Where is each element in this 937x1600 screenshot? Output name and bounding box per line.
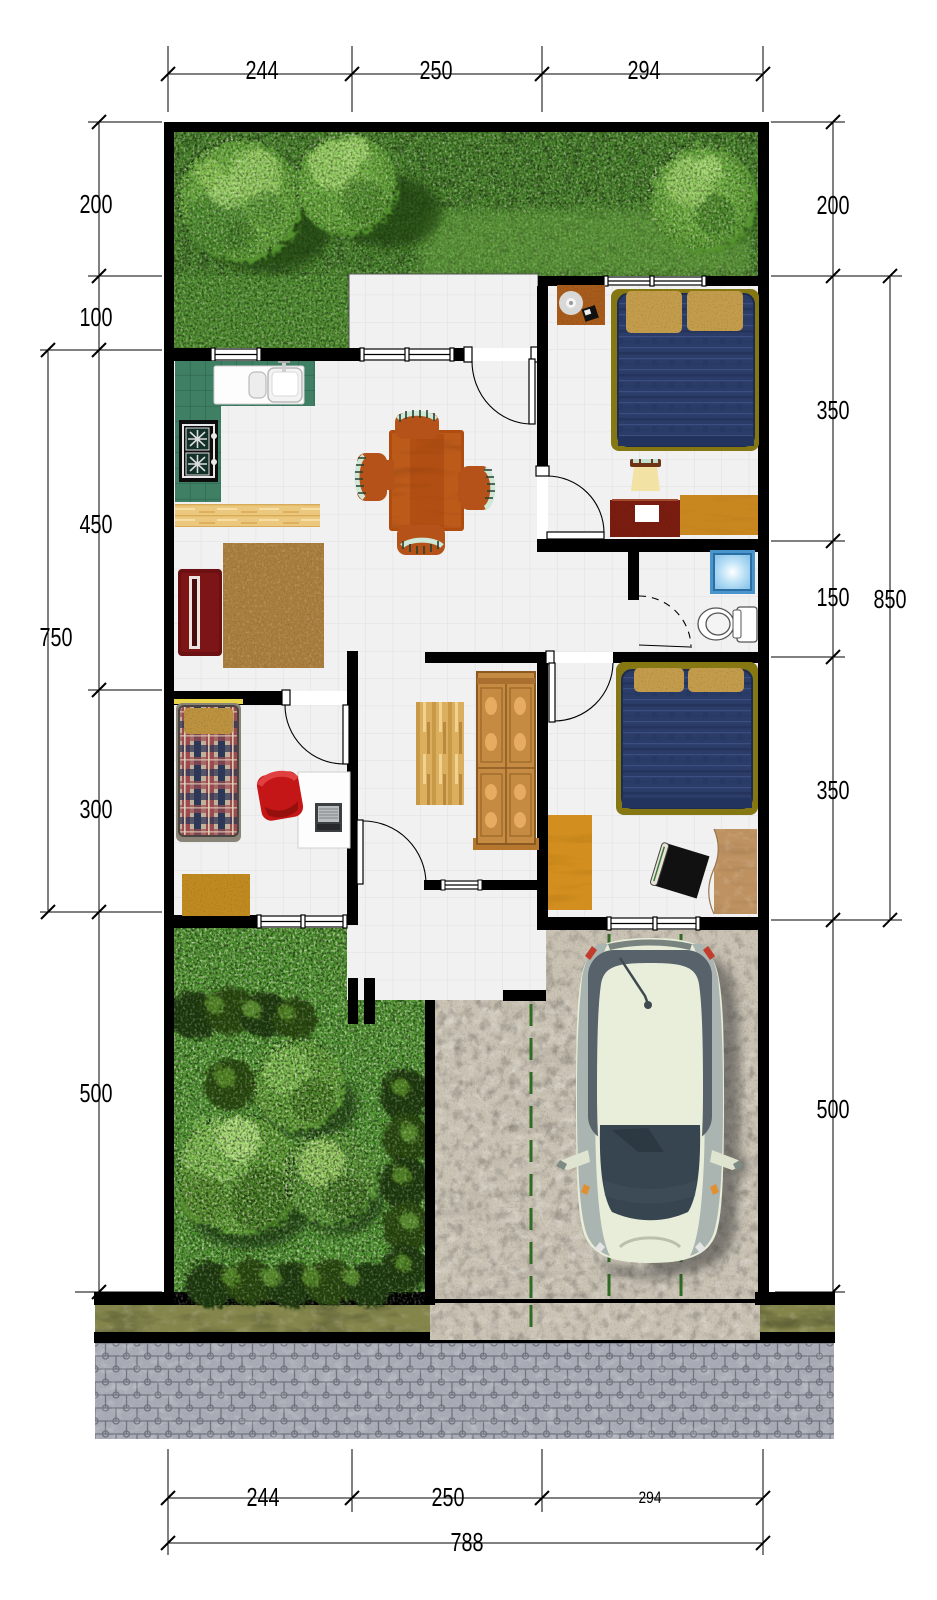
svg-text:450: 450 [80, 509, 113, 539]
svg-text:294: 294 [639, 1488, 662, 1507]
svg-text:350: 350 [817, 395, 850, 425]
svg-text:244: 244 [247, 1482, 280, 1512]
svg-text:100: 100 [80, 302, 113, 332]
svg-text:200: 200 [817, 190, 850, 220]
svg-text:350: 350 [817, 775, 850, 805]
svg-text:500: 500 [817, 1094, 850, 1124]
svg-text:250: 250 [420, 55, 453, 85]
svg-text:250: 250 [432, 1482, 465, 1512]
svg-text:244: 244 [246, 55, 279, 85]
svg-text:500: 500 [80, 1078, 113, 1108]
svg-text:294: 294 [628, 55, 661, 85]
svg-text:200: 200 [80, 189, 113, 219]
svg-text:150: 150 [817, 582, 850, 612]
svg-text:300: 300 [80, 794, 113, 824]
svg-text:850: 850 [874, 584, 907, 614]
svg-text:788: 788 [451, 1527, 484, 1557]
svg-text:750: 750 [40, 622, 73, 652]
